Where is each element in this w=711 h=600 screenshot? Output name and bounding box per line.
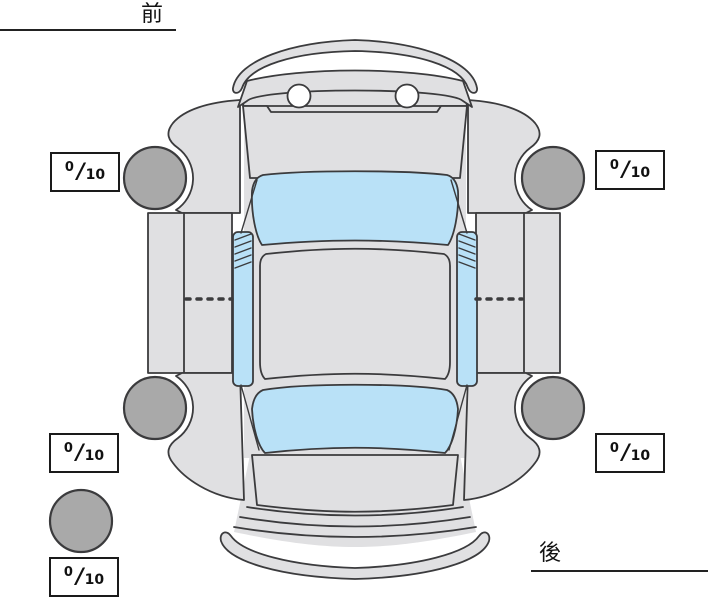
tread-score-box-rear-right: 0 / 10 — [595, 433, 665, 473]
tread-max: 10 — [631, 448, 650, 464]
fraction-slash: / — [77, 159, 85, 183]
headlight-left — [288, 85, 311, 108]
fraction-slash: / — [622, 440, 630, 464]
hood — [243, 106, 467, 178]
car-top-view-illustration — [0, 0, 711, 600]
rear-label: 後 — [539, 543, 561, 565]
tire-rear-right — [522, 377, 584, 439]
trunk — [252, 455, 458, 512]
tread-score-box-rear-left: 0 / 10 — [49, 433, 119, 473]
tread-max: 10 — [85, 572, 104, 588]
tread-value: 0 — [64, 565, 73, 580]
tread-value: 0 — [610, 158, 619, 173]
rear-underline — [531, 570, 708, 572]
fraction-slash: / — [76, 440, 84, 464]
fraction-slash: / — [76, 564, 84, 588]
headlight-right — [396, 85, 419, 108]
door-right — [476, 213, 560, 373]
tread-value: 0 — [610, 441, 619, 456]
fraction-slash: / — [622, 157, 630, 181]
door-left — [148, 213, 232, 373]
tire-rear-left — [124, 377, 186, 439]
tread-score-box-front-right: 0 / 10 — [595, 150, 665, 190]
tire-front-left — [124, 147, 186, 209]
tread-score-box-front-left: 0 / 10 — [50, 152, 120, 192]
front-underline — [0, 29, 176, 31]
tread-score-box-spare: 0 / 10 — [49, 557, 119, 597]
tread-value: 0 — [64, 441, 73, 456]
front-label: 前 — [141, 4, 163, 26]
tread-value: 0 — [65, 160, 74, 175]
car-condition-diagram: 前 後 0 / 10 0 / 10 0 / 10 0 / 10 0 / 10 — [0, 0, 711, 600]
tread-max: 10 — [85, 448, 104, 464]
tire-spare — [50, 490, 112, 552]
windshield — [252, 171, 458, 245]
roof — [260, 249, 450, 379]
tire-front-right — [522, 147, 584, 209]
rear-window — [252, 385, 458, 453]
tread-max: 10 — [86, 167, 105, 183]
tread-max: 10 — [631, 165, 650, 181]
